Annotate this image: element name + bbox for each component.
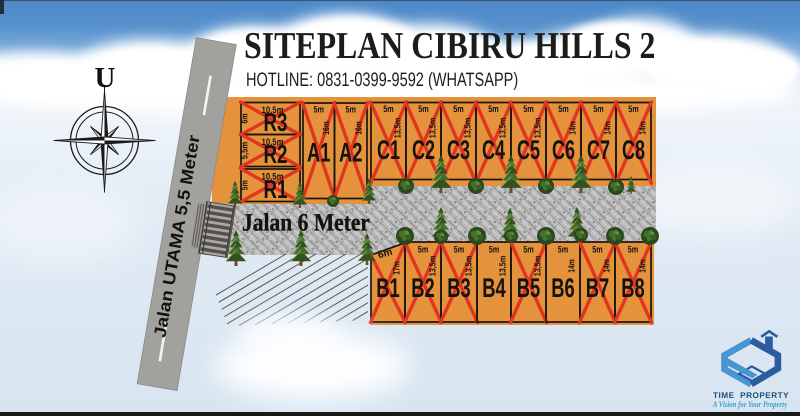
svg-text:14m: 14m [638, 259, 648, 273]
svg-text:B5: B5 [517, 273, 541, 303]
svg-text:5m: 5m [240, 180, 250, 190]
svg-text:C6: C6 [552, 135, 575, 165]
svg-text:5m: 5m [314, 105, 325, 116]
svg-text:5m: 5m [346, 105, 357, 116]
svg-text:A1: A1 [307, 138, 331, 168]
svg-text:14m: 14m [603, 121, 613, 135]
svg-text:5m: 5m [628, 245, 639, 256]
svg-text:14m: 14m [638, 121, 648, 135]
svg-text:16m: 16m [354, 121, 364, 135]
svg-text:5m: 5m [523, 104, 534, 115]
svg-text:C2: C2 [412, 135, 435, 165]
svg-text:B4: B4 [482, 273, 506, 303]
svg-text:16m: 16m [321, 121, 331, 135]
svg-text:5m: 5m [418, 245, 429, 256]
svg-text:B6: B6 [551, 273, 575, 303]
svg-text:R3: R3 [264, 107, 288, 137]
svg-text:Jalan 6 Meter: Jalan 6 Meter [242, 210, 370, 237]
svg-text:B8: B8 [621, 273, 645, 303]
svg-text:5m: 5m [558, 245, 569, 256]
svg-text:C4: C4 [482, 135, 505, 165]
svg-text:B7: B7 [586, 273, 610, 303]
svg-text:14m: 14m [568, 121, 578, 135]
svg-text:5,5m: 5,5m [240, 142, 250, 160]
svg-text:A2: A2 [339, 138, 363, 168]
svg-text:5m: 5m [592, 245, 603, 256]
svg-text:5m: 5m [593, 104, 604, 115]
svg-text:C5: C5 [517, 135, 540, 165]
svg-text:14m: 14m [602, 259, 612, 273]
svg-text:B2: B2 [411, 273, 435, 303]
svg-text:C7: C7 [587, 135, 610, 165]
svg-text:B3: B3 [447, 273, 471, 303]
svg-text:5m: 5m [488, 104, 499, 115]
svg-text:5m: 5m [383, 104, 394, 115]
svg-text:5m: 5m [418, 104, 429, 115]
svg-text:5m: 5m [628, 104, 639, 115]
svg-text:R2: R2 [264, 139, 288, 169]
svg-text:6m: 6m [240, 114, 250, 124]
svg-text:5m: 5m [489, 245, 500, 256]
svg-text:B1: B1 [376, 273, 400, 303]
svg-text:14m: 14m [567, 259, 577, 273]
svg-text:5m: 5m [558, 104, 569, 115]
svg-text:5m: 5m [454, 245, 465, 256]
svg-text:U: U [95, 62, 116, 94]
svg-text:C8: C8 [622, 135, 645, 165]
svg-text:C3: C3 [447, 135, 470, 165]
svg-text:R1: R1 [264, 174, 288, 204]
svg-text:C1: C1 [377, 135, 400, 165]
svg-text:5m: 5m [453, 104, 464, 115]
svg-text:5m: 5m [523, 245, 534, 256]
